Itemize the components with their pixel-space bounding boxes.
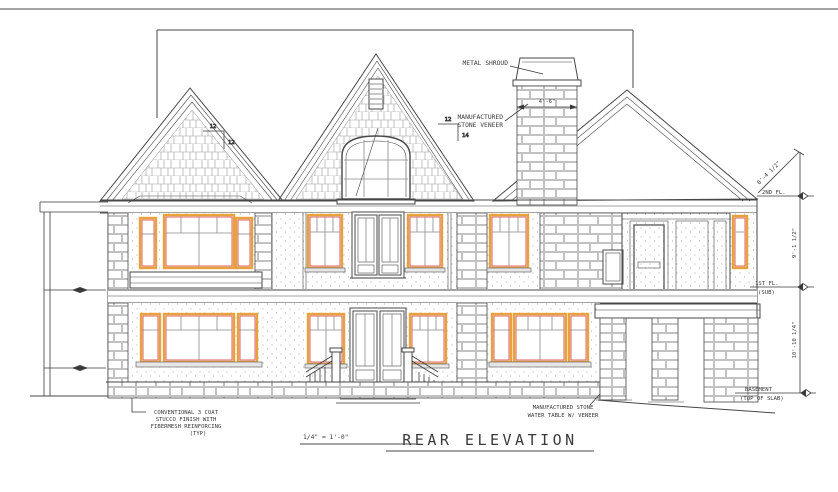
svg-text:METAL SHROUD: METAL SHROUD [463, 60, 509, 67]
upper-french-doors [350, 212, 406, 278]
first-floor-sub-label: (SUB) [758, 290, 775, 296]
svg-text:WATER TABLE W/ VENEER: WATER TABLE W/ VENEER [528, 413, 599, 419]
second-floor-label: 2ND FL. [762, 190, 786, 196]
pitch-left-rise: 12 [228, 140, 235, 146]
upper-window-far-right [487, 215, 531, 272]
svg-text:MANUFACTURED STONE: MANUFACTURED STONE [533, 405, 594, 411]
svg-text:(TYP): (TYP) [190, 431, 207, 437]
svg-text:CONVENTIONAL 3 COAT: CONVENTIONAL 3 COAT [154, 410, 219, 416]
svg-text:FIBERMESH REINFORCING: FIBERMESH REINFORCING [151, 424, 222, 430]
first-floor-window-right-group [489, 314, 591, 367]
dim-first-to-basement: 10'-10 1/4" [792, 321, 798, 358]
upper-porch-end-window [733, 216, 747, 268]
scale-text: 1/4" = 1'-0" [303, 434, 349, 441]
stone-pier [652, 318, 678, 400]
dim-second-to-first: 9'-1 1/2" [792, 228, 798, 258]
chimney-width-text: 4'-6" [539, 99, 556, 105]
svg-text:STUCCO FINISH WITH: STUCCO FINISH WITH [156, 417, 217, 423]
pitch-center-rise: 14 [462, 133, 469, 139]
pitch-center-run: 12 [445, 117, 452, 123]
floor-band [108, 289, 757, 304]
drawing-title: REAR ELEVATION [402, 431, 577, 449]
svg-text:STONE VENEER: STONE VENEER [458, 122, 504, 129]
drawing-sheet: 4'-6" [0, 0, 838, 492]
bay-base-panel [130, 272, 262, 288]
chimney: 4'-6" [513, 58, 581, 205]
basement-level [595, 304, 760, 402]
rear-elevation-drawing: 4'-6" [0, 0, 838, 492]
pitch-left-run: 12 [210, 124, 217, 130]
gable-vent [369, 79, 383, 109]
upper-window-left [305, 215, 345, 272]
first-floor-label: 1ST FL. [755, 281, 779, 287]
stone-wall-small-window [603, 250, 623, 284]
first-floor-window-left-group [136, 314, 262, 367]
upper-window-right [405, 215, 445, 272]
basement-label: BASEMENT [745, 387, 773, 393]
first-floor-window-center-right [407, 314, 449, 368]
water-table [106, 382, 602, 398]
bay-window-group [130, 215, 262, 288]
lower-french-doors [348, 308, 408, 388]
svg-text:MANUFACTURED: MANUFACTURED [458, 114, 504, 121]
basement-slab-label: (TOP OF SLAB) [740, 396, 784, 402]
stone-pier [600, 318, 626, 400]
